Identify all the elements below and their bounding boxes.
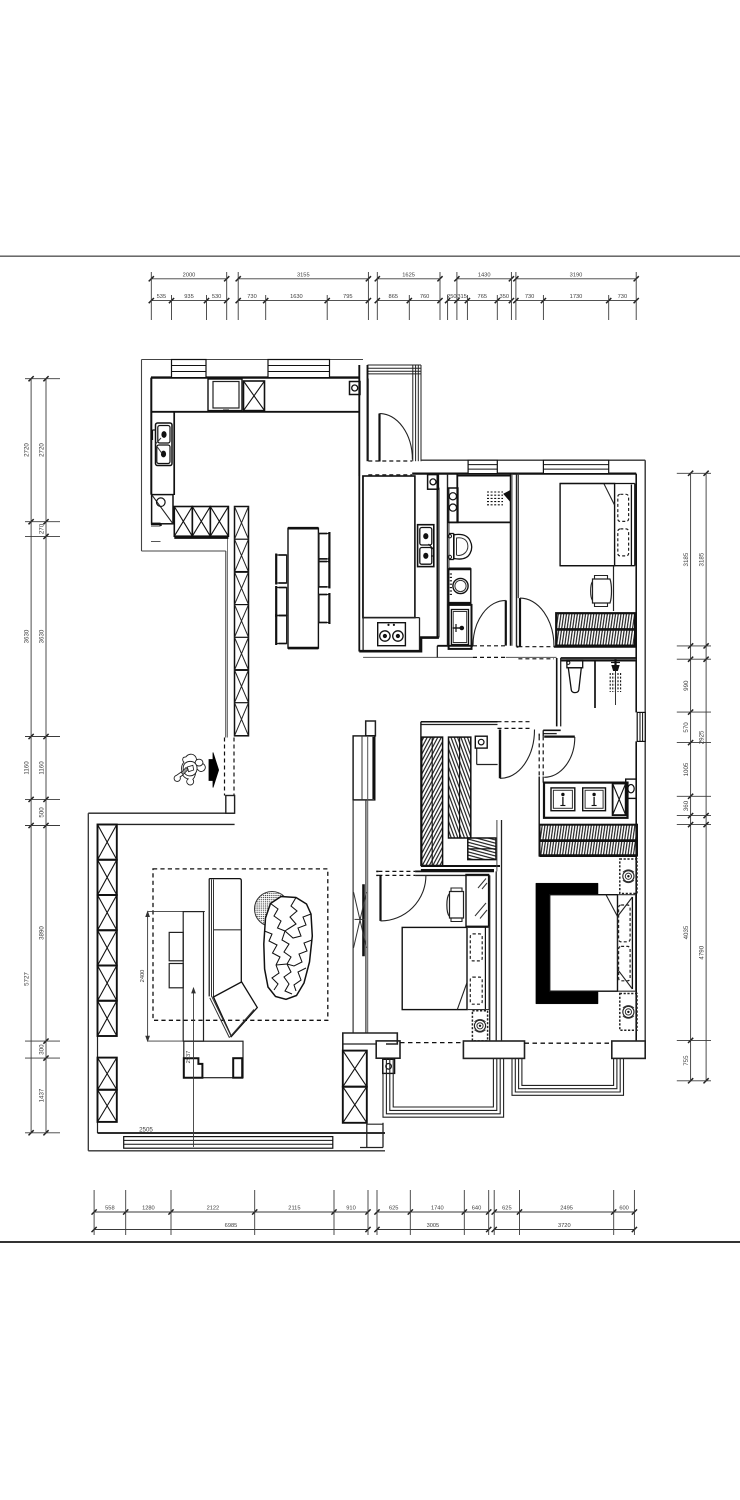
svg-text:795: 795 bbox=[343, 294, 353, 300]
svg-text:990: 990 bbox=[683, 680, 690, 691]
svg-text:760: 760 bbox=[420, 294, 430, 300]
svg-text:4790: 4790 bbox=[699, 945, 706, 959]
svg-text:2400: 2400 bbox=[140, 970, 146, 983]
svg-text:360: 360 bbox=[683, 800, 690, 811]
svg-text:1437: 1437 bbox=[39, 1088, 46, 1102]
svg-text:2122: 2122 bbox=[207, 1205, 220, 1211]
svg-text:1160: 1160 bbox=[24, 761, 31, 775]
svg-text:570: 570 bbox=[683, 722, 690, 733]
svg-text:300: 300 bbox=[39, 1044, 46, 1055]
svg-text:1280: 1280 bbox=[142, 1205, 155, 1211]
svg-text:730: 730 bbox=[618, 294, 628, 300]
svg-text:315: 315 bbox=[457, 294, 467, 300]
svg-text:765: 765 bbox=[478, 294, 488, 300]
svg-text:3890: 3890 bbox=[39, 926, 46, 940]
svg-text:2000: 2000 bbox=[183, 272, 196, 278]
svg-text:1005: 1005 bbox=[683, 762, 690, 776]
svg-text:1625: 1625 bbox=[402, 272, 415, 278]
svg-text:5727: 5727 bbox=[24, 972, 31, 986]
svg-text:2495: 2495 bbox=[560, 1205, 573, 1211]
svg-text:2937: 2937 bbox=[186, 1051, 192, 1064]
svg-text:640: 640 bbox=[472, 1205, 482, 1211]
svg-text:1430: 1430 bbox=[478, 272, 491, 278]
svg-text:500: 500 bbox=[39, 807, 46, 818]
svg-text:530: 530 bbox=[212, 294, 222, 300]
svg-text:625: 625 bbox=[389, 1205, 399, 1211]
svg-text:3155: 3155 bbox=[297, 272, 310, 278]
svg-text:1730: 1730 bbox=[570, 294, 583, 300]
svg-text:755: 755 bbox=[683, 1055, 690, 1066]
svg-text:2720: 2720 bbox=[24, 443, 31, 457]
svg-text:2115: 2115 bbox=[288, 1205, 300, 1211]
svg-text:558: 558 bbox=[105, 1205, 115, 1211]
svg-text:865: 865 bbox=[389, 294, 399, 300]
svg-text:3630: 3630 bbox=[24, 629, 31, 643]
svg-text:3190: 3190 bbox=[570, 272, 583, 278]
svg-text:3720: 3720 bbox=[558, 1223, 571, 1229]
svg-text:730: 730 bbox=[525, 294, 535, 300]
svg-text:2720: 2720 bbox=[39, 443, 46, 457]
svg-text:270: 270 bbox=[39, 523, 46, 534]
svg-text:3630: 3630 bbox=[39, 629, 46, 643]
svg-text:730: 730 bbox=[247, 294, 257, 300]
svg-text:935: 935 bbox=[184, 294, 194, 300]
svg-text:1160: 1160 bbox=[39, 761, 46, 775]
svg-text:1630: 1630 bbox=[290, 294, 303, 300]
svg-text:625: 625 bbox=[502, 1205, 512, 1211]
svg-text:910: 910 bbox=[346, 1205, 356, 1211]
svg-text:2925: 2925 bbox=[699, 730, 706, 744]
svg-text:250: 250 bbox=[447, 294, 457, 300]
svg-text:350: 350 bbox=[500, 294, 510, 300]
svg-text:3185: 3185 bbox=[699, 552, 706, 566]
svg-text:3005: 3005 bbox=[427, 1223, 440, 1229]
svg-text:2505: 2505 bbox=[139, 1127, 153, 1134]
svg-text:600: 600 bbox=[619, 1205, 629, 1211]
svg-text:6985: 6985 bbox=[225, 1223, 238, 1229]
svg-text:535: 535 bbox=[157, 294, 167, 300]
svg-text:3185: 3185 bbox=[683, 552, 690, 566]
svg-text:1740: 1740 bbox=[431, 1205, 444, 1211]
svg-text:4035: 4035 bbox=[683, 925, 690, 939]
